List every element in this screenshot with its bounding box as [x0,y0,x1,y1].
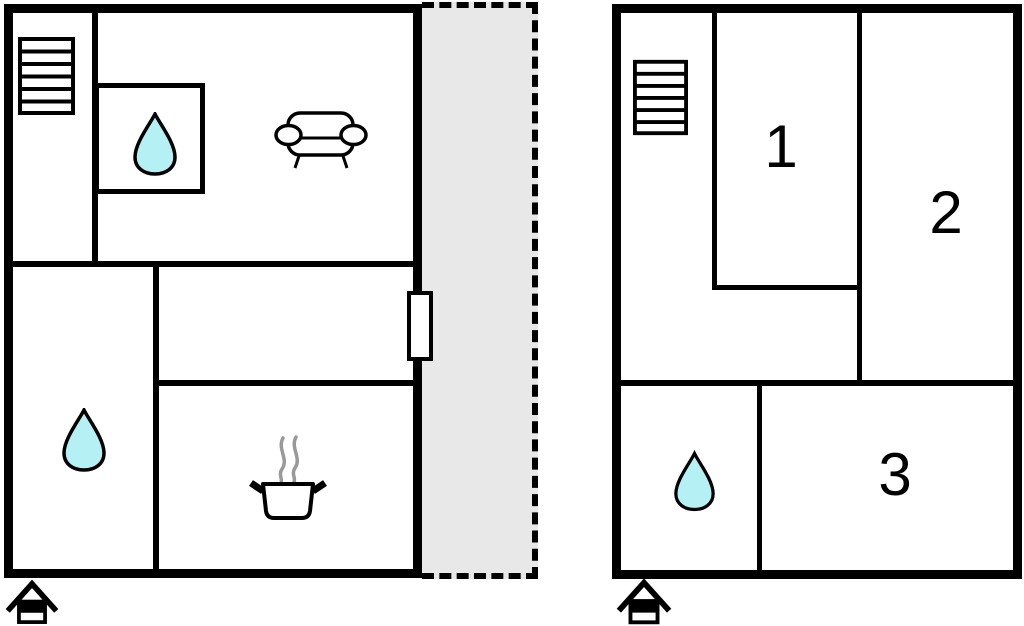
terrace-door [407,291,433,361]
wall-bathroom-right [757,386,762,570]
wall-lower-vertical [153,267,159,572]
wall-room1-left [712,13,717,290]
wall-kitchen-top [156,380,416,386]
sofa-icon [270,103,372,171]
room-label-1: 1 [764,117,797,177]
water-drop-icon [62,408,106,472]
wall-room1-bottom [712,285,862,290]
stairs-icon [18,37,75,115]
stairs-icon [633,58,688,137]
wall-mid-horizontal [621,380,1013,386]
water-drop-icon [133,112,177,176]
room-label-2: 2 [929,183,962,243]
water-drop-icon [674,449,715,514]
room-label-3: 3 [878,445,911,505]
house-entrance-icon [4,579,60,626]
wall-mid-horizontal [10,261,416,267]
terrace-area [422,2,538,579]
house-entrance-icon [615,578,673,626]
cooking-pot-icon [246,433,328,521]
wall-room2-left [857,13,862,385]
floor-plan: 1 2 3 [0,0,1024,626]
